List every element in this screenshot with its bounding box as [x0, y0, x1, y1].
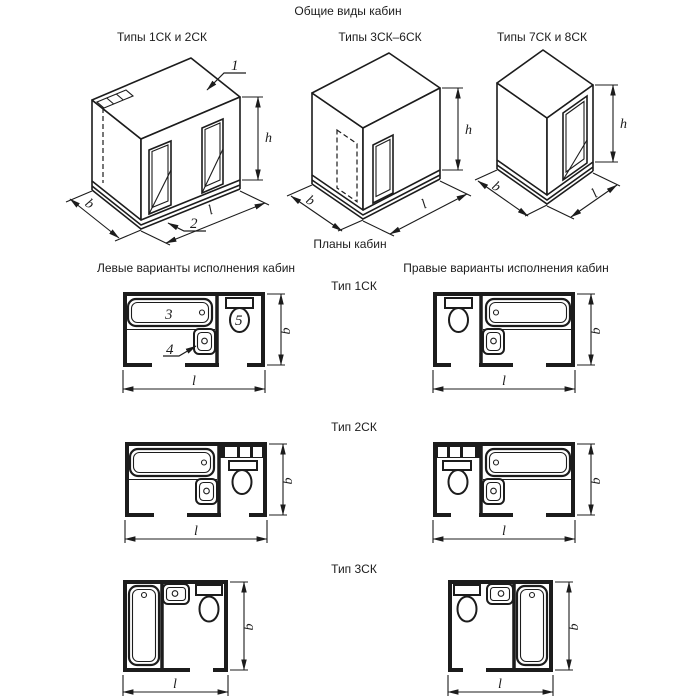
dim-l: l: [433, 520, 575, 543]
toilet-bowl: [200, 597, 219, 622]
toilet: [229, 461, 257, 494]
toilet: [454, 585, 480, 622]
callout-1-number: 1: [231, 58, 239, 74]
dim-b: b: [230, 582, 257, 670]
toilet-bowl: [458, 597, 477, 622]
vent-duct-block: [435, 444, 480, 458]
bathtub: [129, 586, 159, 665]
callout-2-number: 2: [190, 216, 198, 232]
dim-h-label: h: [265, 131, 272, 146]
view1-caption: Типы 1СК и 2СК: [92, 31, 232, 44]
dim-b-label: b: [303, 193, 317, 209]
dim-b: b: [269, 444, 296, 515]
toilet-cistern: [454, 585, 480, 595]
dim-l-label: l: [206, 203, 215, 218]
toilet: 5: [226, 298, 253, 332]
dim-l: l: [123, 370, 265, 393]
toilet-cistern: [196, 585, 222, 595]
right-column-title: Правые варианты исполнения кабин: [396, 262, 616, 275]
bathtub: [483, 449, 571, 480]
drawing-title: Общие виды кабин: [248, 5, 448, 18]
dim-h: h: [442, 88, 472, 170]
callout-4-number: 4: [166, 342, 174, 358]
view2-caption: Типы 3СК–6СК: [310, 31, 450, 44]
toilet: [445, 298, 472, 332]
dim-l-label: l: [173, 677, 177, 692]
vent-duct-block: [220, 444, 265, 458]
washbasin: [483, 329, 504, 354]
dim-b: b: [267, 294, 294, 365]
dim-l-label: l: [194, 524, 198, 539]
toilet-bowl: [449, 308, 468, 332]
dim-b-label: b: [589, 478, 604, 485]
dim-b-label: b: [589, 328, 604, 335]
toilet-bowl: [449, 470, 468, 494]
plan-2sk-left: b l: [123, 440, 298, 548]
dim-l-label: l: [192, 374, 196, 389]
dim-l-label: l: [502, 524, 506, 539]
dim-l: l: [123, 675, 228, 696]
iso-view-3sk-6sk: h b l: [285, 50, 485, 235]
toilet-cistern: [229, 461, 257, 470]
toilet: [443, 461, 471, 494]
dim-h-label: h: [465, 123, 472, 138]
dim-h-label: h: [620, 117, 627, 132]
iso-view-7sk-8sk: h b l: [475, 50, 655, 225]
washbasin: [196, 479, 217, 504]
dim-l-label: l: [502, 374, 506, 389]
bathtub: [517, 586, 547, 665]
iso-view-1sk-2sk: 1 2 h b l: [60, 50, 295, 250]
dim-b-label: b: [242, 624, 257, 631]
bathtub: [129, 449, 217, 480]
dim-l-label: l: [589, 187, 601, 202]
plan-2sk-right: b l: [431, 440, 606, 548]
plan-1sk-left: 3 4 5 b l: [121, 290, 296, 398]
cabin-box: [497, 50, 593, 204]
dim-l: l: [433, 370, 575, 393]
view3-caption: Типы 7СК и 8СК: [472, 31, 612, 44]
dim-l: l: [125, 520, 267, 543]
dim-h: h: [242, 97, 272, 180]
toilet-cistern: [445, 298, 472, 308]
washbasin: [163, 584, 189, 604]
dim-b-label: b: [567, 624, 582, 631]
dim-b-label: b: [281, 478, 296, 485]
washbasin: [487, 584, 513, 604]
bathtub: [483, 299, 571, 330]
dim-l: l: [448, 675, 553, 696]
standard-drawing-sheet: Общие виды кабин Типы 1СК и 2СК Типы 3СК…: [0, 0, 700, 700]
plan-1sk-right: b l: [431, 290, 606, 398]
toilet-bowl: [233, 470, 252, 494]
callout-3-number: 3: [164, 307, 173, 323]
dim-b: b: [577, 294, 604, 365]
row1-type-label: Тип 1СК: [304, 280, 404, 293]
dim-b-label: b: [489, 179, 503, 195]
washbasin: 4: [163, 329, 215, 358]
dim-b: b: [555, 582, 582, 670]
plan-3sk-right: b l: [446, 578, 606, 700]
row3-type-label: Тип 3СК: [304, 563, 404, 576]
toilet: [196, 585, 222, 622]
dim-b: b: [577, 444, 604, 515]
toilet-cistern: [226, 298, 253, 308]
row2-type-label: Тип 2СК: [304, 421, 404, 434]
washbasin: [483, 479, 504, 504]
bathtub: 3: [127, 299, 215, 330]
callout-5-number: 5: [235, 313, 243, 329]
plan-3sk-left: b l: [121, 578, 281, 700]
dim-l-label: l: [498, 677, 502, 692]
toilet-cistern: [443, 461, 471, 470]
left-column-title: Левые варианты исполнения кабин: [86, 262, 306, 275]
dim-l-label: l: [419, 197, 429, 212]
dim-b-label: b: [279, 328, 294, 335]
dim-h: h: [595, 85, 627, 162]
